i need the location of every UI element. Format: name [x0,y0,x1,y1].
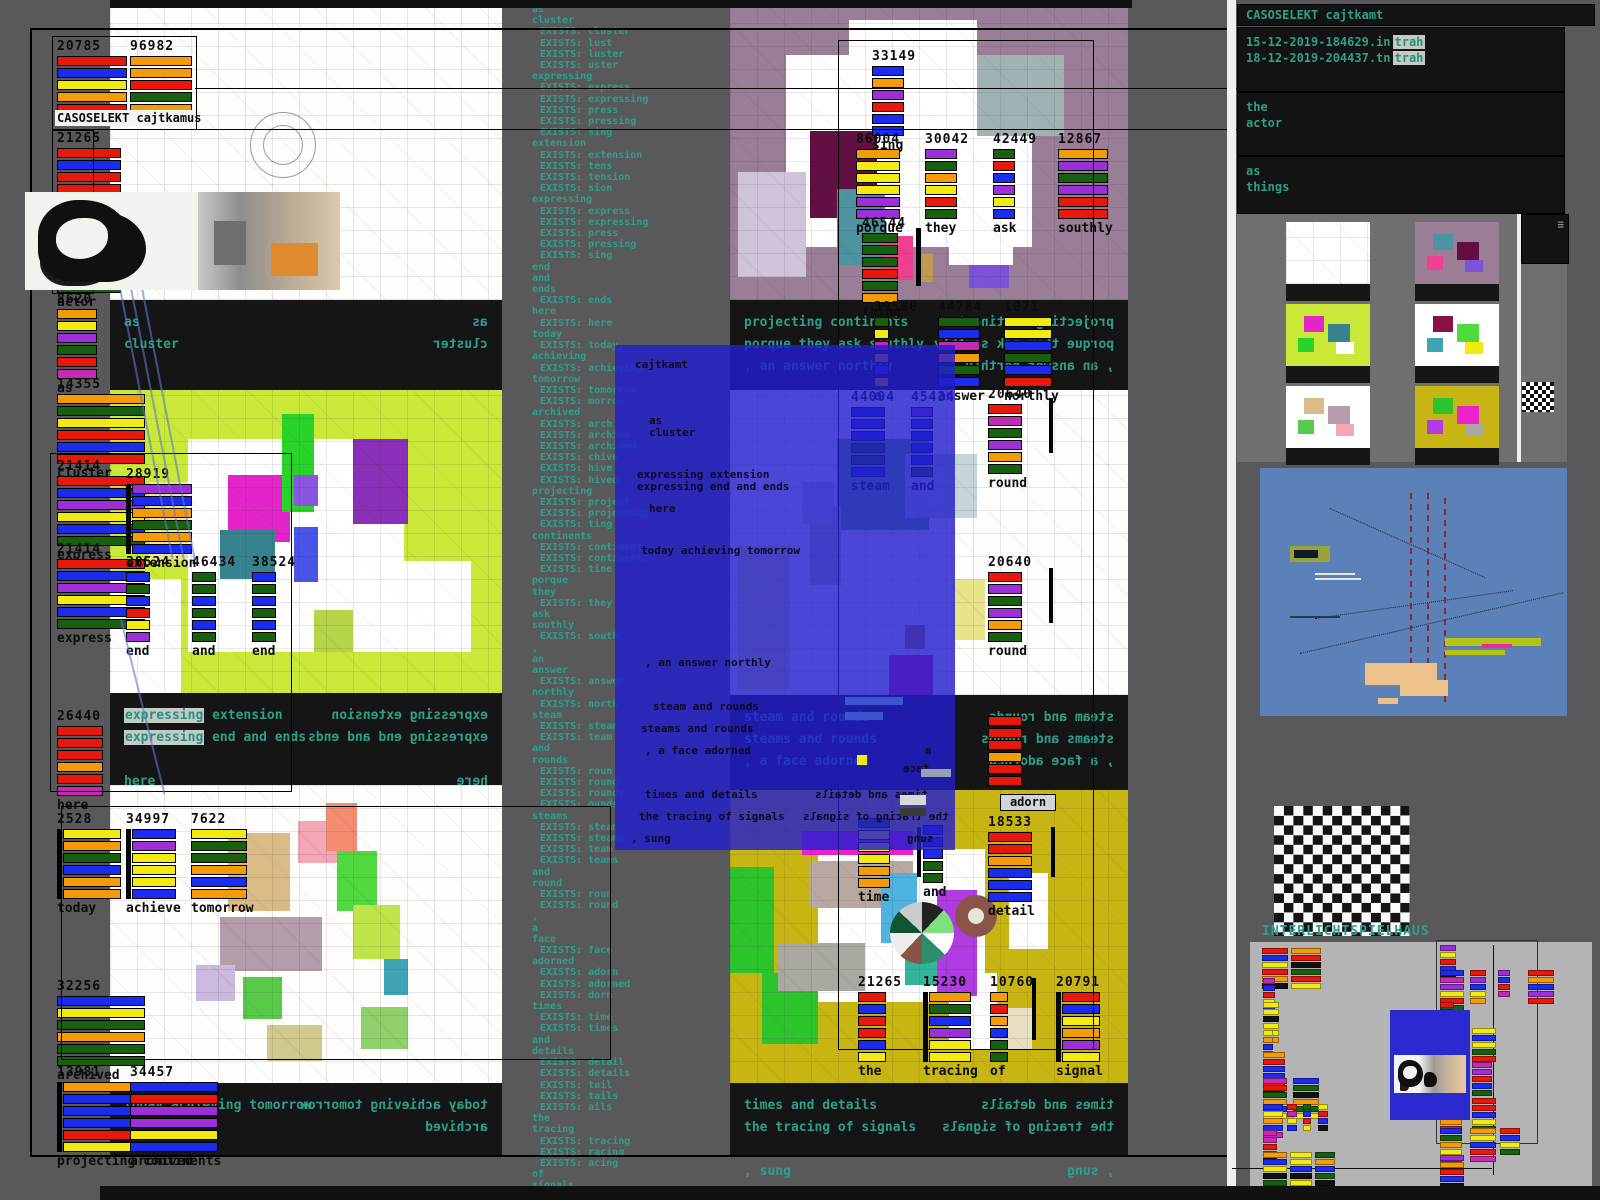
bar [130,68,192,78]
overlay-fragment [857,755,867,765]
mini-bar [1263,1104,1283,1110]
bar [874,317,889,327]
bar [57,394,145,404]
overlay-text: cajtkamt [635,359,688,371]
bar [252,584,276,594]
bar-stack [925,149,957,219]
word-face: face [518,934,730,945]
thumbnail-5[interactable] [1286,386,1370,448]
mini-bar [1291,948,1321,954]
band-times-text-left: times and detailsthe tracing of signals … [744,1095,916,1183]
bar [192,608,216,618]
bar [856,149,900,159]
mini-bar [1440,1128,1462,1134]
map-color-patch [953,579,985,640]
file-tag[interactable]: trah [1393,51,1426,65]
thumb-patch [1298,420,1314,434]
bar [126,608,150,618]
bar [988,416,1022,426]
mini-bar [1262,955,1288,961]
scroll-mark [1049,568,1053,623]
bar-group-number: 39580 [874,301,889,315]
bar-group-label: tomorrow [191,901,247,916]
mini-bar [1440,991,1464,997]
bar [988,608,1022,618]
bar [988,752,1022,762]
mini-stack [1303,1104,1311,1132]
mini-bar [1318,1104,1328,1110]
overlay-text: steam and rounds [653,701,759,713]
bar [1062,1028,1100,1038]
file-name[interactable]: 18-12-2019-204437.tn [1246,51,1391,65]
thumb-patch [1427,256,1443,270]
mini-bar [1290,1159,1312,1165]
sidebar-photo [1394,1055,1466,1093]
bar-group-the: 21265the [858,976,886,1079]
word-expressing: expressing [518,194,730,205]
thumbnail-4[interactable] [1415,304,1499,366]
mini-bar [1472,1035,1496,1041]
bar-group-number: 7622 [191,813,247,827]
overlay-text: , a face adorned [645,745,751,757]
mini-bar [1291,969,1321,975]
bar [57,1032,145,1042]
bar-group-they: 30042they [925,133,957,236]
exists-entry: EXISTS: tails [518,1091,730,1102]
mini-bar [1263,1144,1277,1150]
mini-stack [1291,948,1321,990]
word-tracing: tracing [518,1124,730,1135]
bar-group-number: 44784 [938,301,980,315]
mini-bar [1440,1002,1454,1008]
bar-stack [57,829,121,899]
file-tag[interactable]: trah [1393,35,1426,49]
word-,: , [518,911,730,922]
bar [858,878,890,888]
mini-bar [1440,1169,1464,1175]
bar-group-number: 30042 [925,133,957,147]
sidebar-titlebar: CASOSELEKT cajtkamt [1237,4,1595,26]
text-speck [1290,616,1340,618]
bar-group-end: 38524end [252,556,276,659]
mini-bar [1472,1049,1496,1055]
mini-bar [1472,1069,1492,1075]
bar [1062,1016,1100,1026]
word-adorned: adorned [518,956,730,967]
bar [130,56,192,66]
exists-entry: EXISTS: expressing [518,217,730,228]
bar-group-number: 32256 [57,980,145,994]
file-row[interactable]: 18-12-2019-204437.tntrah [1246,50,1556,66]
bar-group-number: 20791 [1056,976,1100,990]
overlay-text: expressing end and ends [637,481,789,493]
overlay-window[interactable]: cajtkamtasclusterexpressing extensionexp… [615,345,955,850]
exists-entry: EXISTS: details [518,1068,730,1079]
bar [192,596,216,606]
thumb-patch [1457,406,1479,424]
bar [130,80,192,90]
map-color-patch [384,959,408,995]
bar-stack [993,149,1015,219]
mini-bar [1263,1130,1277,1136]
mini-bar [1263,1016,1279,1022]
overlay-fragment [900,795,926,805]
bar-group-achieve: 34997achieve [126,813,176,916]
map-color-patch [977,55,1065,137]
bar [858,1016,886,1026]
mini-bar [1440,970,1464,976]
exists-entry: EXISTS: sing [518,250,730,261]
bar [252,632,276,642]
word-of: of [518,1169,730,1180]
bar [57,92,127,102]
bar [126,620,150,630]
thumbnail-2[interactable] [1415,222,1499,284]
bar-group-label: and [923,885,943,900]
overlay-fragment [921,769,951,777]
bar-group-number: 46544 [862,217,898,231]
bar [988,572,1022,582]
overlay-text: cluster [649,427,695,439]
bar-group-label: end [252,644,276,659]
bar-group-label: signal [1056,1064,1100,1079]
mini-bar [1470,1128,1496,1134]
mini-bar [1440,945,1456,951]
mini-bar [1472,1076,1492,1082]
bar [1058,185,1108,195]
bar [990,1004,1008,1014]
bar [872,66,904,76]
bar-stack [57,996,145,1066]
bar [57,996,145,1006]
mini-bar [1263,1173,1287,1179]
thumb-patch [1457,242,1479,260]
bar [872,78,904,88]
mini-bar [1318,1118,1328,1124]
mini-bar [1470,984,1486,990]
bar [988,632,1022,642]
map-color-patch [196,965,235,1001]
bar-stack [862,233,898,303]
bar [57,148,121,158]
mini-bar [1263,1059,1285,1065]
bar-group-number: 33149 [872,50,904,64]
mini-stack [1440,1155,1464,1190]
bar [57,762,103,772]
bar [191,829,247,839]
bar [252,608,276,618]
word-extension: extension [518,138,730,149]
mini-bar [1470,1149,1496,1155]
mini-bar [1472,1042,1496,1048]
thumb-tool-box[interactable]: ≡ [1521,214,1569,264]
bar [990,1016,1008,1026]
thumbnail-3[interactable] [1286,304,1370,366]
mini-bar [1528,984,1554,990]
exists-entry: EXISTS: round [518,900,730,911]
file-list: 15-12-2019-184629.intrah18-12-2019-20443… [1238,28,1564,72]
bar [993,185,1015,195]
mini-bar [1440,977,1464,983]
mini-checkerboard [1522,382,1554,412]
timeline-diagram-panel[interactable] [1260,468,1567,716]
bar-group-x [988,714,1022,788]
mini-bar [1500,1128,1520,1134]
bar [252,572,276,582]
word-the: the [518,1113,730,1124]
bar [130,1082,218,1092]
bar-group-number: 21265 [858,976,886,990]
exists-entry: EXISTS: tens [518,161,730,172]
bar-group-round: 20640round [988,556,1022,659]
bar-group-number: 8620 [57,293,97,307]
word-and: and [518,867,730,878]
mini-bar [1262,969,1288,975]
bar [57,442,145,452]
bar [929,1016,971,1026]
interlicht-label: INTERLICHTSPIELHAUS [1262,924,1430,939]
overlay-text: the tracing of signals [639,811,785,823]
bar [1062,992,1100,1002]
checkerboard [1274,806,1410,936]
overlay-text-mirrored: sung [907,833,934,845]
bar [57,750,103,760]
mini-bar [1263,1066,1285,1072]
mini-bar [1303,1118,1311,1124]
bar-stack [990,992,1008,1062]
actor-label: theactor [1238,93,1564,137]
bar [57,418,145,428]
exists-entry: EXISTS: adorn [518,967,730,978]
bar [993,161,1015,171]
things-label: asthings [1238,157,1564,201]
exists-entry: EXISTS: sion [518,183,730,194]
bar [130,1094,218,1104]
mini-bar [1263,985,1275,991]
mini-stack [1470,1128,1496,1163]
exists-entry: EXISTS: acing [518,1158,730,1169]
bar-group-label: time [858,890,890,905]
map-color-patch [353,439,408,524]
overlay-text: here [649,503,676,515]
mini-bar [1287,1118,1297,1124]
word-times: times [518,1001,730,1012]
exists-entry: EXISTS: lust [518,38,730,49]
exists-entry: EXISTS: teams [518,855,730,866]
mini-bar [1472,1062,1492,1068]
thumb-patch [1457,324,1479,342]
bar-group-number: 28919 [126,468,192,482]
thumb-label-strip [1286,284,1370,301]
mini-bar [1498,991,1510,997]
mini-bar [1287,1125,1297,1131]
word-cluster: cluster [518,15,730,26]
bar-group-number: 10760 [990,976,1008,990]
bar-group-archived: 34457archived [130,1066,218,1169]
bar [130,1106,218,1116]
mini-bar [1263,1085,1287,1091]
mini-bar [1470,1135,1496,1141]
bar-group-number: 38524 [126,556,150,570]
bar-group-southly: 12867southly [1058,133,1108,236]
scribble-art [38,200,133,282]
exists-entry: EXISTS: uster [518,60,730,71]
thumb-patch [1427,338,1443,352]
overlay-text: , an answer northly [645,657,771,669]
thumb-patch [1465,342,1483,354]
map-color-patch [730,867,774,973]
mini-bar [1440,984,1464,990]
mini-bar [1262,962,1288,968]
bar [132,877,176,887]
bar [925,197,957,207]
mini-bar [1500,1142,1520,1148]
file-name[interactable]: 15-12-2019-184629.in [1246,35,1391,49]
bar-stack [130,1082,218,1152]
exists-entry: EXISTS: times [518,1023,730,1034]
bar-group-label: tracing [923,1064,971,1079]
bar [929,1040,971,1050]
mini-bar [1528,998,1554,1004]
mini-bar [1318,1125,1328,1131]
mini-bar [1263,1037,1273,1043]
mini-stack [1498,970,1510,998]
mini-bar [1470,970,1486,976]
band-today-text-mirrored: today achieving tomorrowarchived [300,1095,488,1139]
bar [1058,161,1108,171]
overlay-text: steams and rounds [641,723,754,735]
bar [57,80,127,90]
bar [130,1118,218,1128]
bar [126,572,150,582]
bar [923,861,943,871]
mini-bar [1263,992,1275,998]
mini-bar [1263,1118,1283,1124]
sidebar-divider [1227,0,1236,1200]
scroll-mark [916,228,921,286]
bar [57,309,97,319]
bar [132,865,176,875]
bar-group-here: 26440here [57,710,103,813]
mini-bar [1293,1092,1319,1098]
bar-group-number: 12867 [1058,133,1108,147]
mini-bar [1470,991,1486,997]
bar-group-number: 15230 [923,976,971,990]
bar-group-label: round [988,476,1022,491]
bar [923,849,943,859]
bar [988,596,1022,606]
mini-bar [1263,1092,1287,1098]
thumb-patch [1433,316,1453,332]
mini-stack [1528,970,1554,1005]
bar [126,632,150,642]
menu-icon[interactable]: ≡ [1557,217,1564,233]
mini-bar [1470,977,1486,983]
bar [57,321,97,331]
top-strip [110,0,1132,8]
mini-bar [1472,1105,1496,1111]
bar-stack [192,572,216,642]
bar [57,1020,145,1030]
exists-entry: EXISTS: extension [518,150,730,161]
bar-group-tomorrow: 7622tomorrow [191,813,247,916]
word-round: round [518,878,730,889]
mini-bar [1293,1078,1319,1084]
thumb-patch [1465,260,1483,272]
mini-bar [1315,1159,1335,1165]
bar-group-round: 20640round [988,388,1022,491]
thumbnail-1[interactable] [1286,222,1370,284]
bar-group-label: here [57,798,103,813]
text-speck [1315,578,1361,580]
file-row[interactable]: 15-12-2019-184629.intrah [1246,34,1556,50]
bar [130,1130,218,1140]
bar [988,620,1022,630]
bar-group-number: 42449 [993,133,1015,147]
bar [858,866,890,876]
mini-bar [1263,1030,1273,1036]
thumb-patch [1427,420,1443,434]
mini-bar [1263,1137,1277,1143]
mini-bar [1287,1111,1297,1117]
connector-line [92,129,1237,130]
mini-bar [1440,952,1456,958]
bar [988,892,1032,902]
bar [988,880,1032,890]
bar [57,357,97,367]
overlay-text-mirrored: the tracing of signals [803,811,949,823]
word-here: here [518,306,730,317]
thumbnail-6[interactable] [1415,386,1499,448]
bar-group-label: round [988,644,1022,659]
bar [63,877,121,887]
bar-group-number: 18533 [988,816,1032,830]
map-color-patch [738,172,806,277]
mini-bar [1498,977,1510,983]
mini-bar [1303,1125,1311,1131]
mini-bar [1263,1078,1287,1084]
bar [925,209,957,219]
bar-stack [57,309,97,379]
bar [57,56,127,66]
bar [132,484,192,494]
bar [1058,197,1108,207]
bar [993,197,1015,207]
bar [63,853,121,863]
mini-bar [1440,1142,1462,1148]
bar [988,844,1032,854]
exists-entry: EXISTS: press [518,228,730,239]
band-as-cluster: asclusterascluster [110,300,502,390]
bar [1062,1052,1100,1062]
mini-bar [1262,948,1288,954]
overlay-text: today achieving tomorrow [641,545,800,557]
mini-bar [1498,970,1510,976]
sidebar-photo-window[interactable] [1390,1010,1470,1120]
thumb-label-strip [1415,284,1499,301]
bar-group-today: 2528today [57,813,121,916]
bar [132,841,176,851]
bar-group-number: 2528 [57,813,121,827]
bar-group-of: 10760of [990,976,1008,1079]
bar-group-number: 20640 [988,388,1022,402]
scribble-art-small [1398,1060,1422,1087]
adorn-label-box: adorn [1000,794,1056,811]
thumb-patch [1328,406,1350,424]
mini-bar [1315,1152,1335,1158]
map-color-patch [267,1025,322,1061]
bar [1058,173,1108,183]
